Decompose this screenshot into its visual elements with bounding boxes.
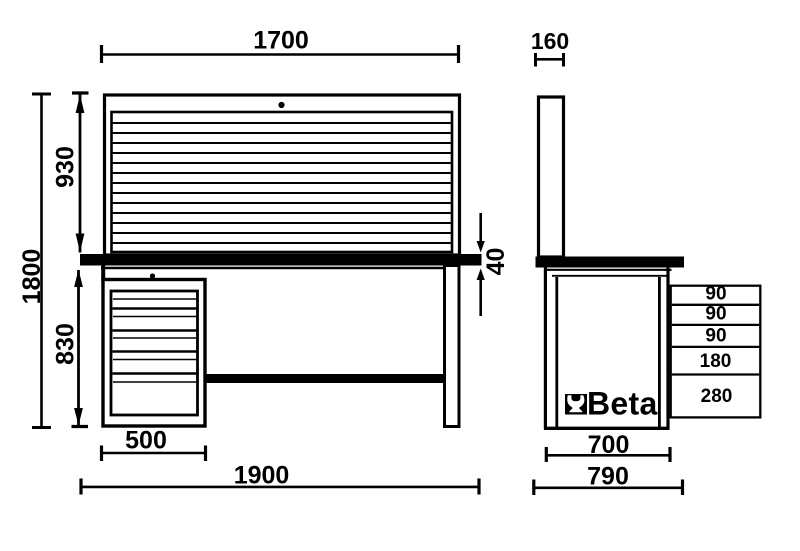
- svg-text:830: 830: [52, 323, 80, 365]
- svg-text:500: 500: [125, 427, 167, 455]
- svg-text:1800: 1800: [18, 249, 46, 305]
- svg-text:930: 930: [52, 146, 80, 188]
- svg-text:90: 90: [705, 284, 726, 305]
- svg-text:700: 700: [588, 431, 630, 459]
- svg-text:1700: 1700: [253, 27, 309, 55]
- svg-text:180: 180: [700, 351, 732, 372]
- svg-text:280: 280: [701, 386, 733, 407]
- svg-text:160: 160: [531, 28, 569, 54]
- svg-text:1900: 1900: [234, 462, 290, 490]
- svg-text:90: 90: [705, 304, 726, 325]
- svg-text:90: 90: [705, 326, 726, 347]
- svg-text:Beta: Beta: [587, 386, 658, 422]
- svg-text:40: 40: [482, 248, 510, 276]
- svg-text:790: 790: [587, 463, 629, 491]
